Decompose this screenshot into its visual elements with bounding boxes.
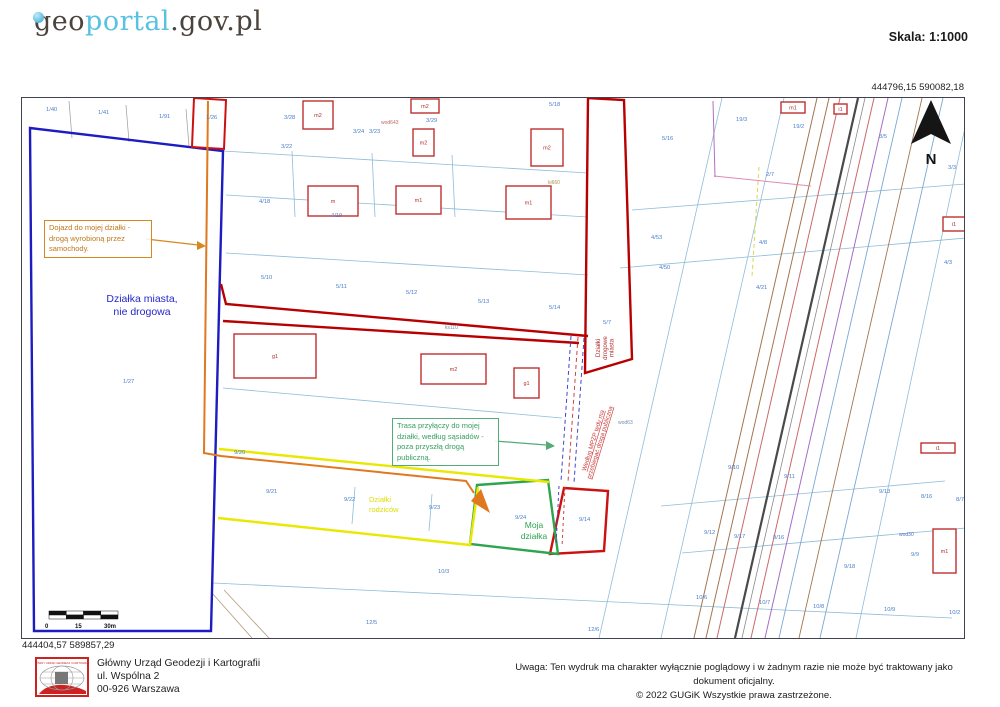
parcel-label: 10/8	[813, 604, 824, 610]
svg-text:Mojadziałka: Mojadziałka	[521, 520, 548, 541]
building-label: m2	[314, 113, 322, 119]
parcel-label: 9/12	[704, 530, 715, 536]
annotation-access-road: Dojazd do mojej działki - drogą wyrobion…	[44, 220, 152, 258]
green-note-arrow-line	[495, 441, 546, 445]
disclaimer-line2: © 2022 GUGiK Wszystkie prawa zastrzeżone…	[500, 689, 968, 703]
logo-text-suffix: .gov.pl	[170, 6, 262, 37]
building-label: m2	[420, 141, 428, 147]
green-note-arrow-icon	[546, 441, 555, 450]
building-label: m2	[543, 146, 551, 152]
parcel-label: 9/13	[879, 489, 890, 495]
building-label: g1	[523, 381, 529, 387]
geoportal-logo: geoportal.gov.pl	[34, 6, 262, 37]
parcel-label: 5/12	[406, 290, 417, 296]
red-parcel-top-left	[192, 98, 226, 149]
red-road-vertical	[585, 98, 632, 373]
parcel-label: 9/11	[784, 474, 795, 480]
parcel-label: 5/13	[478, 299, 489, 305]
coords-top-right: 444796,15 590082,18	[872, 82, 964, 93]
svg-text:Działkirodziców: Działkirodziców	[369, 495, 399, 514]
gugik-address-line2: ul. Wspólna 2	[97, 670, 260, 683]
logo-text-portal: portal	[85, 6, 170, 37]
parcel-label: 8/7	[956, 497, 964, 503]
map-frame: m2m2m2m2mm1m1g1m2g1m1i1i1i1m11/401/411/9…	[21, 97, 965, 639]
parcel-label: 1/27	[123, 379, 134, 385]
annotation-city-parcel: Działka miasta, nie drogowa	[92, 293, 192, 319]
north-letter: N	[926, 151, 937, 168]
annotation-city-parcel-line2: nie drogowa	[92, 306, 192, 319]
building-label: i1	[838, 107, 842, 113]
parcel-label: 3/29	[426, 118, 437, 124]
parcel-label: 5/11	[336, 284, 347, 290]
my-parcel-label: Mojadziałka	[521, 520, 548, 541]
parcel-label: 9/18	[844, 564, 855, 570]
parcel-label: 5/18	[549, 102, 560, 108]
svg-text:Według MPZP tędy maprzebiegać: Według MPZP tędy maprzebiegać droga publ…	[579, 403, 615, 480]
parcel-label: 9/14	[579, 517, 591, 523]
north-arrow-icon	[911, 100, 951, 144]
building-label: i1	[952, 222, 956, 228]
building-label: m1	[789, 106, 797, 112]
parcel-label: 9/20	[234, 450, 245, 456]
svg-text:N: N	[926, 151, 937, 168]
map-canvas: m2m2m2m2mm1m1g1m2g1m1i1i1i1m11/401/411/9…	[22, 98, 964, 638]
scalebar-label: 15	[75, 624, 82, 630]
parcel-label: 10/2	[949, 610, 960, 616]
parcel-label: 10/3	[438, 569, 449, 575]
scalebar-label: 0	[45, 624, 49, 630]
scalebar-label: 30m	[104, 624, 116, 630]
parcel-label: 5/16	[662, 136, 673, 142]
gugik-seal-logo: GŁÓWNY URZĄD GEODEZJI I KARTOGRAFII	[35, 657, 89, 697]
parcel-label: 9/17	[734, 534, 745, 540]
orange-note-arrow-line	[146, 239, 198, 245]
parcel-label: 3/22	[281, 144, 292, 150]
disclaimer-line1: Uwaga: Ten wydruk ma charakter wyłącznie…	[500, 661, 968, 689]
svg-text:Działkidrogowemiasta: Działkidrogowemiasta	[595, 336, 616, 360]
seal-globe-block	[55, 672, 68, 684]
parcel-label: 9/21	[266, 489, 277, 495]
parents-parcels-label: Działkirodziców	[369, 495, 399, 514]
parcel-label: 1/41	[98, 110, 109, 116]
gugik-address: Główny Urząd Geodezji i Kartografii ul. …	[97, 657, 260, 697]
svg-text:GŁÓWNY URZĄD GEODEZJI I KARTOG: GŁÓWNY URZĄD GEODEZJI I KARTOGRAFII	[37, 660, 87, 665]
red-road-top-edge	[221, 284, 588, 336]
parcel-label: 1/91	[159, 114, 170, 120]
parcel-label: wod643	[381, 120, 399, 126]
map-labels: m2m2m2m2mm1m1g1m2g1m1i1i1i1m11/401/411/9…	[45, 99, 964, 633]
utility-dashed-lines	[556, 336, 584, 547]
annotation-city-parcel-line1: Działka miasta,	[92, 293, 192, 306]
parcel-label: 19/3	[736, 117, 747, 123]
parcel-label: 3/28	[284, 115, 295, 121]
building-label: m	[331, 199, 336, 205]
parcel-label: 9/9	[911, 552, 919, 558]
disclaimer: Uwaga: Ten wydruk ma charakter wyłącznie…	[500, 661, 968, 703]
parcel-label: 4/53	[651, 235, 662, 241]
scale-label: Skala:	[889, 30, 926, 44]
annotation-utility-route: Trasa przyłączy do mojej działki, według…	[392, 418, 499, 466]
parcel-label: 9/23	[429, 505, 440, 511]
parcel-label: 3/3	[948, 165, 956, 171]
building-label: m1	[415, 198, 423, 204]
parcel-label: 4/3	[944, 260, 952, 266]
parcel-label: 10/9	[884, 607, 895, 613]
parcel-label: 1/26	[206, 115, 217, 121]
gugik-address-line3: 00-926 Warszawa	[97, 683, 260, 696]
parcel-label: 5/7	[603, 320, 611, 326]
yellow-strip-bottom	[218, 487, 478, 545]
parcel-label: 9/22	[344, 497, 355, 503]
print-page: geoportal.gov.pl Skala: 1:1000 444796,15…	[0, 0, 1000, 707]
parcel-label: ki660	[548, 180, 560, 186]
parcel-label: 2/7	[766, 172, 774, 178]
scale-value: 1:1000	[929, 30, 968, 44]
parcel-label: ks110	[445, 325, 458, 331]
parcel-label: 8/16	[921, 494, 932, 500]
parcel-label: 12/6	[588, 627, 599, 633]
parcel-label: 9/16	[773, 535, 784, 541]
city-road-parcels-label: Działkidrogowemiasta	[595, 336, 616, 360]
parcel-label: 12/5	[366, 620, 377, 626]
parcel-label: 3/5	[879, 134, 887, 140]
globe-icon	[33, 12, 44, 23]
parcel-label: 9/10	[728, 465, 739, 471]
building-label: m2	[450, 367, 458, 373]
parcel-label: 10/6	[696, 595, 707, 601]
building-label: i1	[936, 446, 940, 452]
building-label: m1	[525, 201, 533, 207]
parcel-label: wod63	[618, 420, 633, 426]
parcel-label: 4/18	[259, 199, 270, 205]
parcel-label: 5/14	[549, 305, 561, 311]
building-label: m1	[941, 549, 949, 555]
parcel-label: 4/19	[331, 213, 342, 219]
parcel-label: 5/10	[261, 275, 272, 281]
orange-note-arrow-icon	[197, 241, 206, 250]
parcel-label: 10/7	[759, 600, 770, 606]
parcel-label: 1/40	[46, 107, 57, 113]
scale-indicator: Skala: 1:1000	[889, 30, 968, 44]
coords-bottom-left: 444404,57 589857,29	[22, 640, 114, 651]
building-label: g1	[272, 354, 278, 360]
mpzp-note: Według MPZP tędy maprzebiegać droga publ…	[579, 403, 615, 480]
parcel-label: wod30	[899, 532, 914, 538]
parcel-label: 4/21	[756, 285, 767, 291]
gugik-address-line1: Główny Urząd Geodezji i Kartografii	[97, 657, 260, 670]
parcel-label: 19/2	[793, 124, 804, 130]
parcel-label: 4/50	[659, 265, 670, 271]
parcel-label: 3/23	[369, 129, 380, 135]
parcel-label: 4/8	[759, 240, 767, 246]
parcel-label: 3/24	[353, 129, 365, 135]
my-parcel-outline	[470, 480, 558, 554]
scalebar	[49, 611, 118, 619]
building-label: m2	[421, 104, 429, 110]
yellow-strip-top	[219, 449, 549, 482]
